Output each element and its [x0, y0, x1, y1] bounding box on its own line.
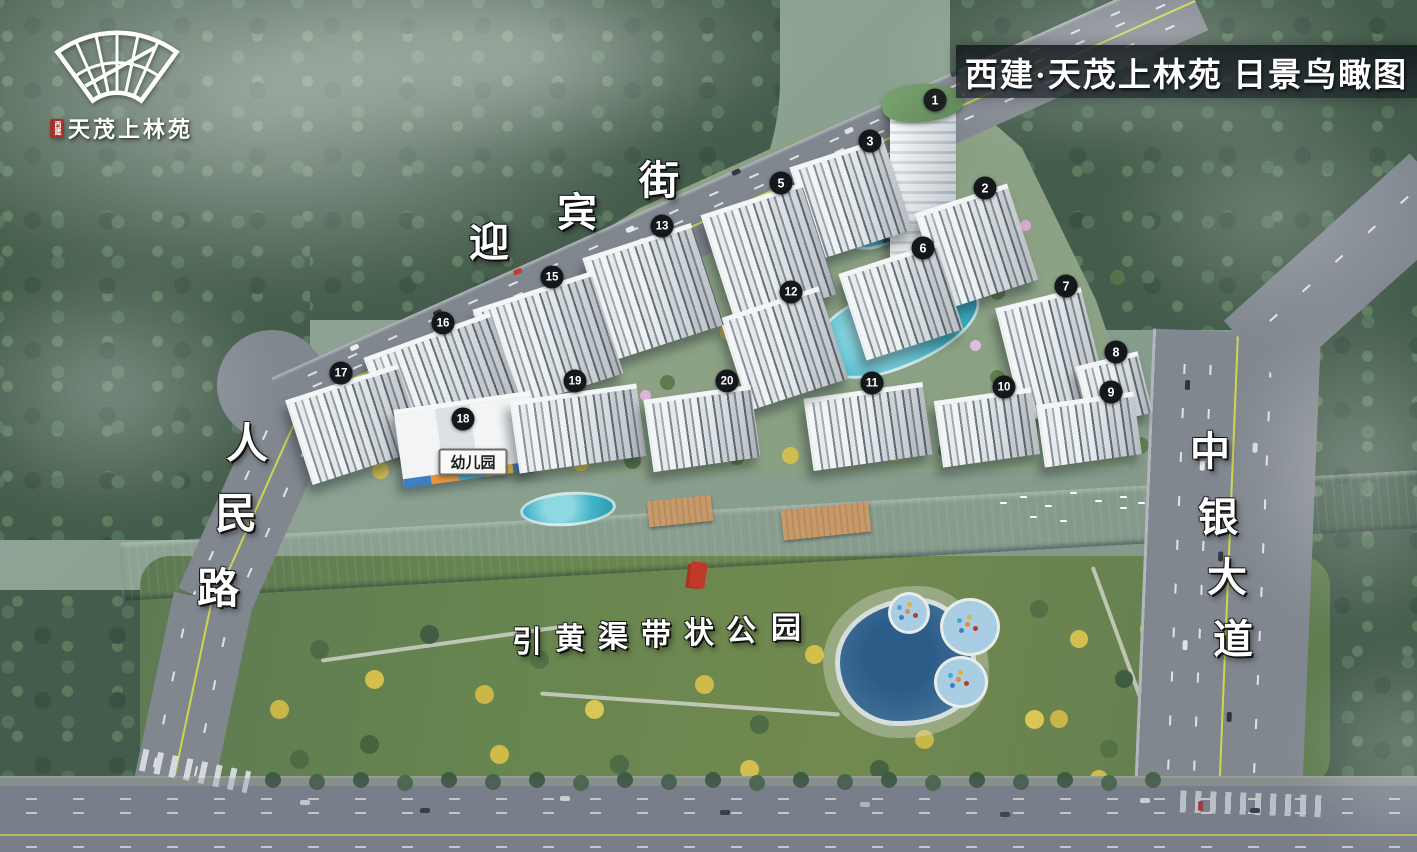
building-badge-1: 1: [924, 89, 947, 112]
zhongyin-avenue-char: 道: [1213, 620, 1253, 660]
splash-pad: [934, 656, 988, 708]
zhongyin-avenue-char: 大: [1207, 558, 1247, 598]
building-badge-13: 13: [651, 215, 674, 238]
building-9: [1036, 391, 1142, 467]
park-label-char: 状: [684, 619, 714, 649]
renmin-road-char: 路: [197, 569, 239, 611]
building-badge-3: 3: [859, 130, 882, 153]
building-badge-19: 19: [564, 370, 587, 393]
cars-zhongyin: [1185, 380, 1190, 390]
brand-logo: 西建 天茂上林苑: [42, 14, 252, 149]
park-trees-right: [1030, 600, 1048, 618]
title-banner-text: 西建·天茂上林苑 日景鸟瞰图: [965, 48, 1408, 96]
building-badge-9: 9: [1100, 381, 1123, 404]
building-badge-17: 17: [330, 362, 353, 385]
building-badge-15: 15: [541, 266, 564, 289]
bottom-atmosphere-tint: [0, 778, 1417, 852]
renmin-road-char: 民: [215, 494, 257, 536]
zhongyin-avenue-char: 银: [1198, 498, 1238, 538]
building-badge-10: 10: [993, 376, 1016, 399]
yingbin-street-char: 街: [639, 161, 679, 201]
park-label-char: 引: [512, 628, 542, 658]
brand-seal: 西建: [50, 119, 64, 138]
title-banner: 西建·天茂上林苑 日景鸟瞰图: [956, 45, 1417, 98]
park-trees: [310, 640, 329, 659]
building-badge-18: 18: [452, 408, 475, 431]
building-badge-12: 12: [780, 281, 803, 304]
building-badge-20: 20: [716, 370, 739, 393]
kindergarten-label: 幼儿园: [438, 449, 507, 476]
building-badge-7: 7: [1055, 275, 1078, 298]
birds: [1120, 496, 1127, 498]
yingbin-street-char: 宾: [557, 193, 597, 233]
zhongyin-avenue-char: 中: [1190, 432, 1230, 472]
brand-fan-logo-icon: [42, 14, 192, 110]
splash-pad: [940, 598, 1000, 656]
building-20: [643, 385, 760, 472]
building-badge-16: 16: [432, 312, 455, 335]
splash-pad: [888, 592, 930, 634]
building-10: [934, 388, 1040, 468]
aerial-masterplan-rendering: 1235678910111213151617181920 迎宾街人民路中银大道引…: [0, 0, 1417, 852]
building-badge-11: 11: [861, 372, 884, 395]
building-badge-5: 5: [770, 172, 793, 195]
brand-name-text: 天茂上林苑: [68, 112, 193, 144]
park-label-char: 公: [726, 617, 756, 647]
building-badge-2: 2: [974, 177, 997, 200]
birds: [1000, 502, 1007, 504]
renmin-road-char: 人: [226, 424, 268, 466]
park-label-char: 渠: [598, 623, 628, 653]
park-label-char: 带: [641, 621, 671, 651]
yingbin-street-char: 迎: [469, 223, 509, 263]
kindergarten-label-text: 幼儿园: [450, 455, 495, 472]
park-label-char: 黄: [555, 625, 585, 655]
building-badge-6: 6: [912, 237, 935, 260]
park-label-char: 园: [771, 614, 801, 644]
building-badge-8: 8: [1105, 341, 1128, 364]
